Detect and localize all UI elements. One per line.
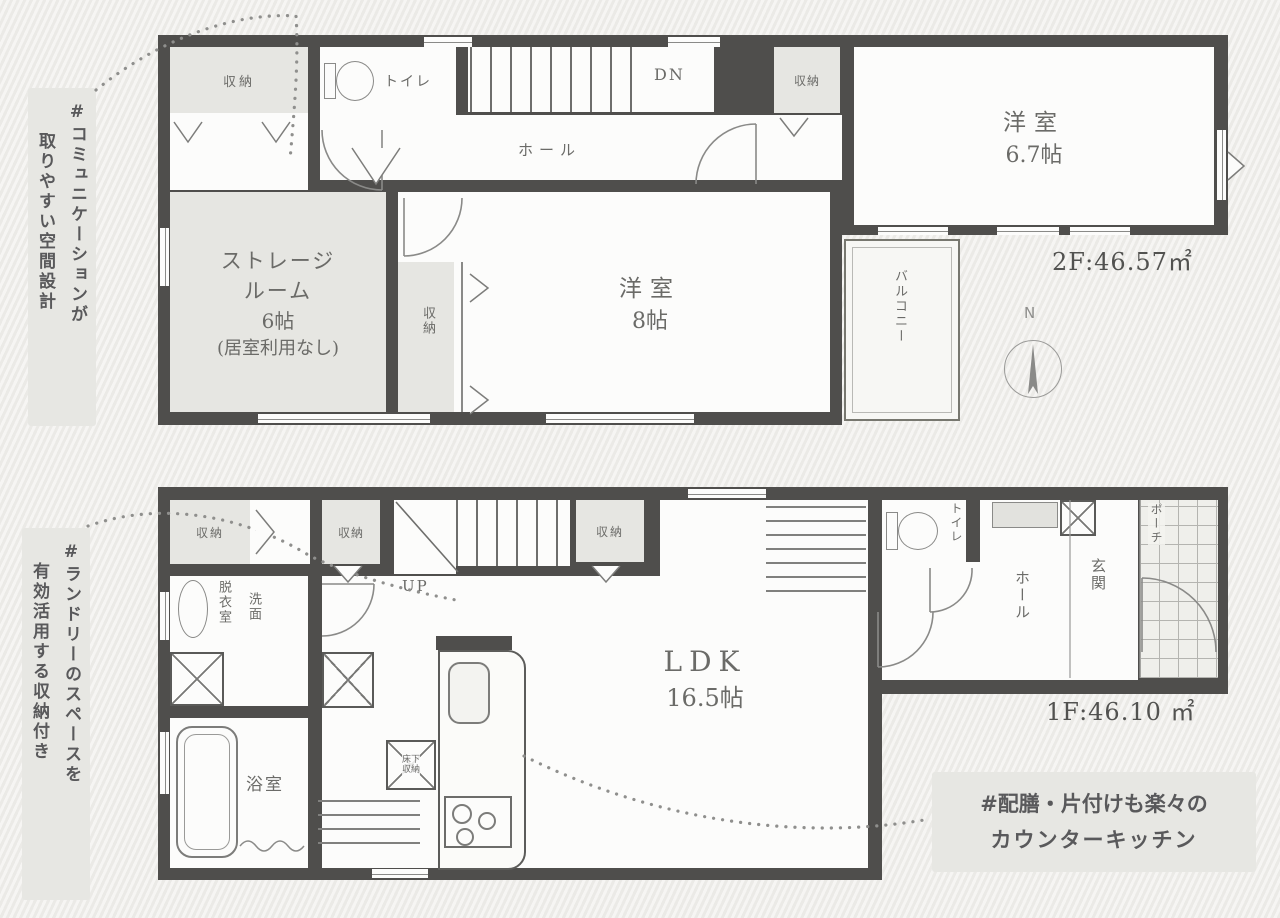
floorplan-page: { "canvas": {"background": "#f1f0ed", "w…	[0, 0, 1280, 918]
annotation-laundry: #ランドリーのスペースを 有効活用する収納付き	[22, 528, 90, 900]
stairs-treads	[456, 500, 570, 574]
stove-box	[444, 796, 512, 848]
closet-label: 収納	[338, 524, 364, 541]
floor1-hall	[882, 562, 1072, 680]
annotation-counter-kitchen-line2: カウンターキッチン	[991, 822, 1198, 858]
window	[372, 869, 428, 878]
annotation-communication-line1: #コミュニケーションが	[65, 102, 90, 325]
floor1-closet-b: 収納	[322, 500, 380, 564]
washroom-label: 洗面	[244, 592, 263, 622]
ldk-size-label: 16.5帖	[666, 678, 743, 713]
dressing-room-label: 脱衣室	[214, 580, 233, 625]
hall-label: ホール	[1012, 570, 1033, 621]
annotation-communication-line2: 取りやすい空間設計	[33, 132, 58, 312]
kitchen-wall-top	[436, 636, 512, 650]
underfloor-storage-label-2: 収納	[402, 765, 420, 775]
counter-hatch-bottom	[318, 800, 420, 856]
bathtub-inner-line	[184, 734, 230, 850]
floor1-closet-c: 収納	[576, 500, 644, 562]
entrance-counter-box	[1060, 500, 1096, 536]
underfloor-storage-box: 床下 収納	[386, 740, 436, 790]
bathtub-icon	[176, 726, 238, 858]
annotation-communication: #コミュニケーションが 取りやすい空間設計	[28, 88, 96, 426]
ldk-label: LDK	[664, 645, 747, 678]
stairs-up-label: UP	[402, 577, 429, 595]
washing-machine-space	[170, 652, 224, 706]
ldk-label-block: LDK 16.5帖	[620, 636, 790, 722]
annotation-laundry-line2: 有効活用する収納付き	[27, 562, 52, 762]
stairs-landing-edge	[456, 566, 586, 574]
floor1-bathroom: 浴室	[170, 718, 308, 868]
floor1-area-label: 1F:46.10 ㎡	[1046, 692, 1196, 727]
window	[688, 489, 766, 498]
washbasin-icon	[178, 580, 208, 638]
stove-burner-icon	[456, 828, 474, 846]
floor1-closet-a: 収納	[170, 500, 250, 564]
counter-hatch-top	[766, 506, 866, 598]
bathroom-label: 浴室	[246, 770, 284, 795]
floor1-closet-a-doorway	[250, 500, 310, 564]
annotation-laundry-line1: #ランドリーのスペースを	[59, 542, 84, 785]
toilet-label: トイレ	[948, 502, 965, 544]
floor1-stairs-room	[394, 500, 570, 574]
toilet-bowl-icon	[898, 512, 938, 550]
shoe-cabinet	[992, 502, 1058, 528]
annotation-counter-kitchen-line1: #配膳・片付けも楽々の	[980, 786, 1208, 822]
porch-label: ポーチ	[1148, 503, 1165, 545]
kitchen-sink-icon	[448, 662, 490, 724]
stove-burner-icon	[478, 812, 496, 830]
closet-label: 収納	[596, 523, 624, 540]
window	[160, 592, 169, 640]
washing-machine-space-2	[322, 652, 374, 708]
underfloor-storage-label-1: 床下	[402, 755, 420, 765]
stove-burner-icon	[452, 804, 472, 824]
closet-label: 収納	[196, 524, 224, 541]
window	[160, 732, 169, 794]
entrance-label: 玄関	[1088, 558, 1109, 592]
toilet-tank-icon	[886, 512, 898, 550]
annotation-counter-kitchen: #配膳・片付けも楽々の カウンターキッチン	[932, 772, 1256, 872]
